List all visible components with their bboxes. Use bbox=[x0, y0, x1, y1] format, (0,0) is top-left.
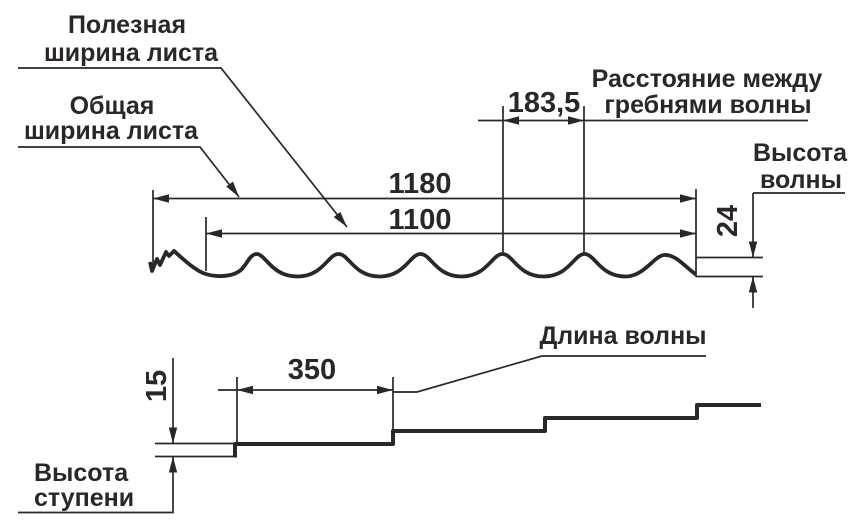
label-crest-distance-line2: гребнями волны bbox=[604, 91, 811, 119]
callout-crest-distance: Расстояние между гребнями волны bbox=[592, 65, 823, 119]
dim-step-height-15: 15 bbox=[141, 358, 235, 473]
step-view-extension-lines bbox=[237, 377, 393, 443]
label-step-height-line2: ступени bbox=[34, 484, 134, 512]
sheet-wave-profile-line bbox=[150, 251, 696, 277]
leader-wave-length bbox=[393, 356, 706, 392]
label-crest-distance-line1: Расстояние между bbox=[592, 65, 823, 93]
dim-wave-length-350: 350 bbox=[218, 354, 393, 394]
sheet-step-profile-line bbox=[235, 405, 761, 458]
label-wave-height-line1: Высота bbox=[753, 139, 848, 167]
label-step-height-line1: Высота bbox=[34, 459, 129, 487]
label-useful-width-line2: ширина листа bbox=[44, 39, 219, 67]
callout-step-height: Высота ступени bbox=[18, 457, 173, 513]
dim-value-1100: 1100 bbox=[389, 204, 452, 236]
diagram-svg: 1180 1100 183,5 24 Полезная bbox=[0, 0, 862, 528]
leader-total-width bbox=[18, 147, 239, 197]
label-total-width-line1: Общая bbox=[70, 92, 155, 120]
label-useful-width-line1: Полезная bbox=[68, 11, 186, 39]
callout-wave-length: Длина волны bbox=[393, 322, 707, 392]
wave-cross-section-view: 1180 1100 183,5 24 Полезная bbox=[18, 11, 848, 308]
dim-value-15: 15 bbox=[141, 370, 173, 402]
dim-useful-width-1100: 1100 bbox=[206, 204, 696, 238]
step-side-view: 350 15 Длина волны Высота ступени bbox=[18, 322, 761, 513]
callout-wave-height: Высота волны bbox=[753, 139, 848, 194]
dim-value-1180: 1180 bbox=[389, 168, 452, 200]
callout-total-width: Общая ширина листа bbox=[18, 92, 239, 197]
label-wave-height-line2: волны bbox=[760, 166, 842, 194]
dim-value-24: 24 bbox=[712, 205, 744, 237]
dim-wave-height-24: 24 bbox=[696, 193, 763, 308]
roofing-sheet-dimension-diagram: 1180 1100 183,5 24 Полезная bbox=[0, 0, 862, 528]
label-wave-length: Длина волны bbox=[539, 322, 706, 350]
dim-value-183-5: 183,5 bbox=[508, 87, 581, 119]
label-total-width-line2: ширина листа bbox=[24, 117, 199, 145]
dim-value-350: 350 bbox=[288, 354, 336, 386]
